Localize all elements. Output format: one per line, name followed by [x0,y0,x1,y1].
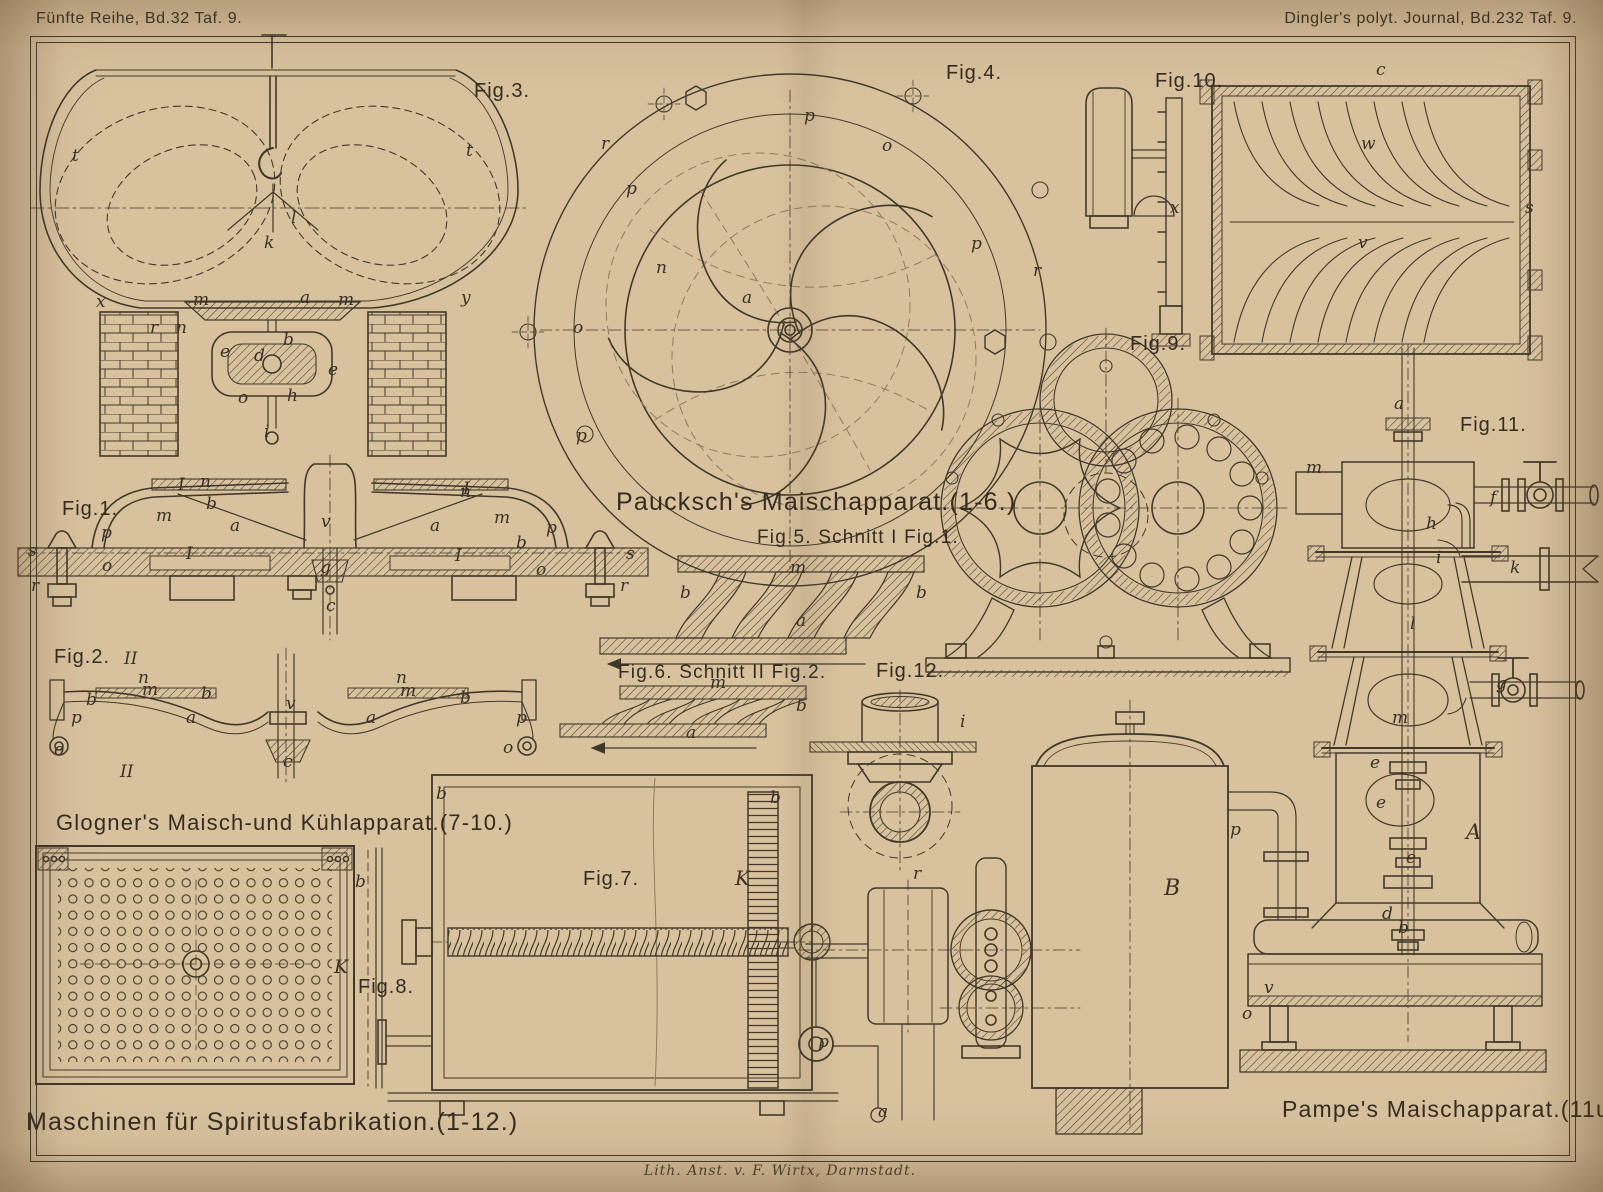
part-letter-label: m [338,292,354,309]
part-letter-label: m [790,560,806,577]
part-letter-label: m [193,292,209,309]
part-letter-label: o [536,562,546,579]
part-letter-label: p [818,1034,829,1051]
part-letter-label: b [770,790,781,807]
part-letter-label: p [1230,822,1241,839]
figure-number-label: Fig.4. [946,62,1002,85]
part-letter-label: B [1164,878,1180,900]
part-letter-label: k [1510,560,1520,577]
part-letter-label: r [620,578,628,595]
part-letter-label: b [796,698,807,715]
part-letter-label: II [124,651,137,668]
figure-number-label: Fig.9. [1130,333,1186,356]
figure-number-label: Fig.11. [1460,414,1527,437]
part-letter-label: m [1392,710,1408,727]
part-letter-label: a [878,1104,888,1121]
part-letter-label: I [186,546,193,563]
part-letter-label: p [516,710,527,727]
part-letter-label: e [1406,850,1416,867]
part-letter-label: n [200,474,211,491]
fig8-plate-drawing [36,846,382,1088]
fig10-drum-drawing [1086,80,1542,360]
part-letter-label: m [710,675,726,692]
figure-number-label: Fig.10. [1155,70,1223,93]
part-letter-label: K [735,868,750,888]
part-letter-label: a [1394,396,1404,413]
part-letter-label: d [1382,906,1393,923]
part-letter-label: a [742,290,752,307]
part-letter-label: v [1358,235,1368,252]
part-letter-label: b [201,686,212,703]
part-letter-label: o [238,390,248,407]
part-letter-label: r [1033,263,1041,280]
part-letter-label: d [254,348,265,365]
part-letter-label: v [321,514,331,531]
part-letter-label: g [1496,676,1507,693]
part-letter-label: o [102,558,112,575]
part-letter-label: m [156,508,172,525]
part-letter-label: x [1170,200,1180,217]
fig12-socket-drawing [810,690,976,870]
part-letter-label: r [601,136,609,153]
part-letter-label: I [455,548,462,565]
caption-pampe: Pampe's Maischapparat.(11u.12.) [1282,1096,1603,1123]
part-letter-label: c [1376,62,1386,79]
part-letter-label: A [1466,822,1481,843]
part-letter-label: p [71,710,82,727]
part-letter-label: b [516,535,527,552]
part-letter-label: l [291,210,296,227]
part-letter-label: b [460,690,471,707]
part-letter-label: b [86,692,97,709]
part-letter-label: n [176,320,187,337]
part-letter-label: g [320,560,331,577]
caption-glogner: Glogner's Maisch-und Kühlapparat.(7-10.) [56,810,513,836]
part-letter-label: b [680,585,691,602]
part-letter-label: w [1361,136,1376,153]
part-letter-label: m [1306,460,1322,477]
part-letter-label: o [54,742,64,759]
caption-maschinen: Maschinen für Spiritusfabrikation.(1-12.… [26,1108,518,1137]
part-letter-label: c [283,754,293,771]
part-letter-label: b [1398,920,1409,937]
part-letter-label: I [178,477,185,494]
figure-number-label: Fig.1. [62,498,118,521]
part-letter-label: k [264,235,274,252]
part-letter-label: s [626,546,635,563]
part-letter-label: p [101,525,112,542]
part-letter-label: v [1264,980,1274,997]
part-letter-label: t [72,148,79,165]
part-letter-label: e [1370,755,1380,772]
part-letter-label: b [355,874,366,891]
part-letter-label: c [326,598,336,615]
part-letter-label: l [1410,616,1415,633]
figure-number-label: Fig.8. [358,976,414,999]
part-letter-label: i [960,714,965,731]
part-letter-label: x [96,294,106,311]
part-letter-label: p [626,181,637,198]
part-letter-label: v [286,696,296,713]
lithographer-credit: Lith. Anst. v. F. Wirtx, Darmstadt. [620,1163,940,1179]
part-letter-label: i [264,424,269,441]
part-letter-label: p [971,236,982,253]
fig6-schnitt-drawing [560,686,807,748]
caption-fig5-schnitt: Fig.5. Schnitt I Fig.1. [757,527,959,549]
part-letter-label: a [430,518,440,535]
pampe-drive-drawing [800,858,1080,1120]
part-letter-label: p [576,428,587,445]
part-letter-label: p [804,108,815,125]
part-letter-label: a [300,290,310,307]
part-letter-label: o [1242,1006,1252,1023]
part-letter-label: a [686,725,696,742]
figure-number-label: Fig.7. [583,868,639,891]
part-letter-label: II [120,764,133,781]
part-letter-label: f [1490,490,1496,507]
figure-number-label: Fig.12. [876,660,944,683]
figure-number-label: Fig.2. [54,646,110,669]
part-letter-label: y [461,290,471,307]
part-letter-label: t [466,143,473,160]
part-letter-label: b [206,496,217,513]
part-letter-label: r [31,578,39,595]
lithograph-plate: Fünfte Reihe, Bd.32 Taf. 9. Dingler's po… [0,0,1603,1192]
part-letter-label: a [366,710,376,727]
part-letter-label: h [1426,516,1437,533]
part-letter-label: a [186,710,196,727]
part-letter-label: o [882,138,892,155]
part-letter-label: e [1376,795,1386,812]
part-letter-label: b [283,332,294,349]
part-letter-label: s [1525,200,1534,217]
part-letter-label: i [1436,550,1441,567]
part-letter-label: o [503,740,513,757]
part-letter-label: a [796,613,806,630]
part-letter-label: e [220,344,230,361]
part-letter-label: m [142,682,158,699]
part-letter-label: r [150,320,158,337]
part-letter-label: m [494,510,510,527]
part-letter-label: a [230,518,240,535]
part-letter-label: K [334,958,348,977]
part-letter-label: I [463,481,470,498]
part-letter-label: p [546,520,557,537]
part-letter-label: h [287,388,298,405]
fig11-column-drawing [1240,345,1598,1072]
part-letter-label: b [916,585,927,602]
part-letter-label: o [573,320,583,337]
part-letter-label: n [656,260,667,277]
fig3-kettle-drawing [30,35,528,456]
part-letter-label: s [28,543,37,560]
caption-paucksch: Paucksch's Maischapparat.(1-6.) [616,488,1016,517]
part-letter-label: m [400,683,416,700]
part-letter-label: e [328,362,338,379]
figure-number-label: Fig.3. [474,80,530,103]
plate-drawing [0,0,1603,1192]
part-letter-label: r [913,866,921,883]
part-letter-label: b [436,786,447,803]
